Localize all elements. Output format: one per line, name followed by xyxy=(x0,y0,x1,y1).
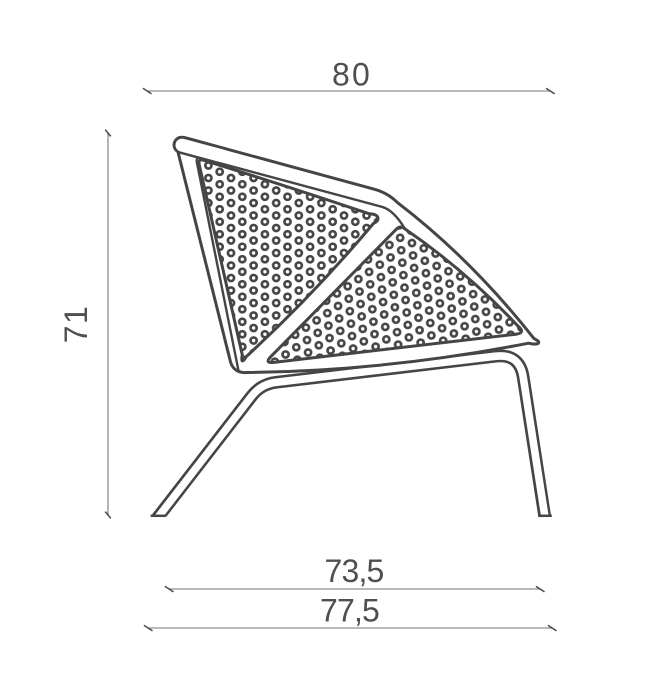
svg-text:80: 80 xyxy=(332,57,372,93)
svg-text:73,5: 73,5 xyxy=(324,553,383,589)
svg-text:77,5: 77,5 xyxy=(320,592,379,628)
svg-text:71: 71 xyxy=(58,305,94,344)
